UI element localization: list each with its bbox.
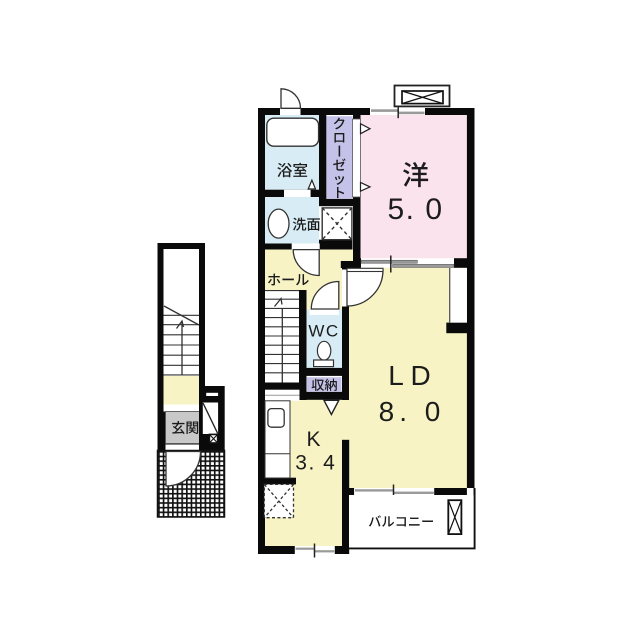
svg-text:3. 4: 3. 4 [295,452,336,475]
svg-text:5. 0: 5. 0 [387,193,443,226]
svg-text:8. 0: 8. 0 [379,396,446,427]
svg-text:L D: L D [388,360,431,391]
svg-text:K: K [306,428,320,451]
svg-text:WC: WC [308,322,339,341]
